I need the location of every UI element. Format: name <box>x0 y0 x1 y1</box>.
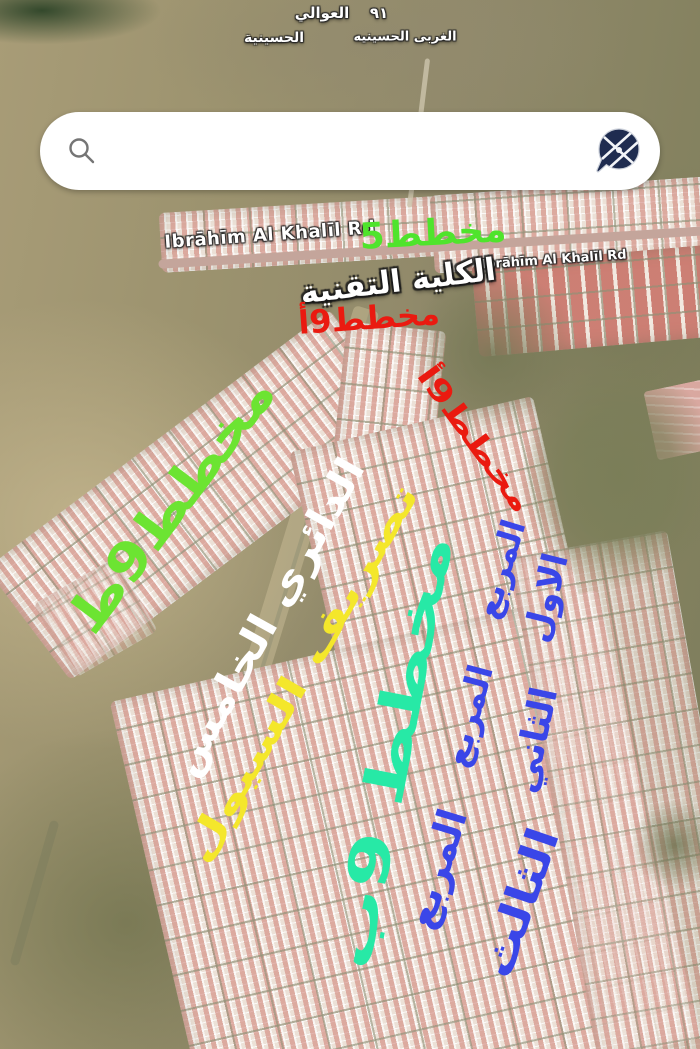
place-label-gharbi-husayniyah[interactable]: الغربى الحسينيه <box>353 30 456 45</box>
place-label-awali[interactable]: العوالي <box>295 4 350 22</box>
annotation-plan9a-top: مخطط9أ <box>297 297 440 339</box>
search-icon <box>66 135 98 167</box>
place-label-husayniyah[interactable]: الحسينية <box>244 30 304 46</box>
search-input[interactable] <box>108 138 586 164</box>
pink-parcel <box>643 380 700 461</box>
place-label-91[interactable]: ٩١ <box>370 4 388 22</box>
dirt-road <box>10 820 60 967</box>
annotation-plan5: مخطط5 <box>359 212 508 256</box>
search-bar[interactable] <box>40 112 660 190</box>
map-canvas[interactable]: العوالي ٩١ الغربى الحسينيه الحسينية Ibrā… <box>0 0 700 1049</box>
map-logo-icon[interactable] <box>596 128 640 174</box>
